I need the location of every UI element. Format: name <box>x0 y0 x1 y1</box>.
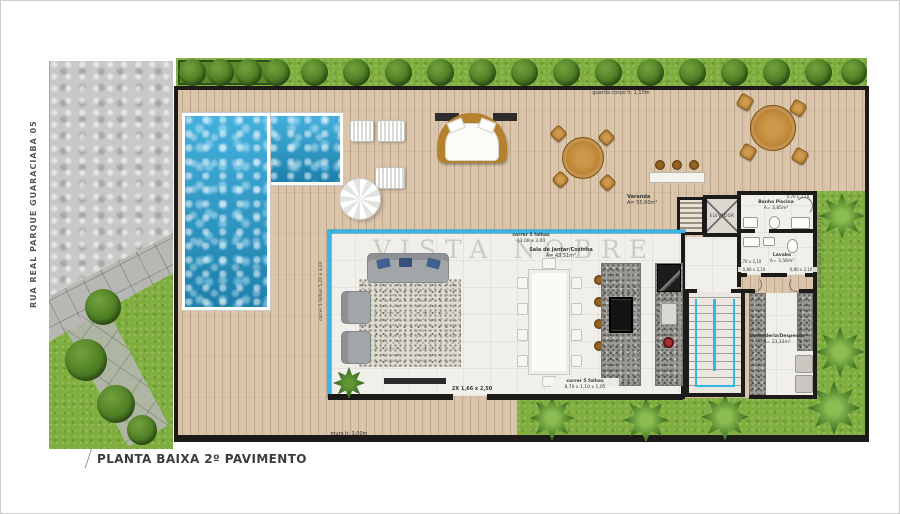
title-leader-line <box>85 447 93 468</box>
plot-wall-right <box>865 86 869 439</box>
bar-counter <box>649 172 705 183</box>
round-table <box>562 137 604 179</box>
parasol <box>339 178 381 220</box>
wall <box>761 273 787 277</box>
guard-rail-label: guarda corpo h: 1,10m <box>579 90 663 96</box>
opening-label-glass-left: correr 5 folhas 5,20 x 3,00 <box>319 259 324 323</box>
sun-lounger <box>350 120 374 142</box>
bathroom-vanity <box>791 217 810 229</box>
dining-chair <box>571 355 582 367</box>
hedge-bush <box>263 59 290 86</box>
hedge-bush <box>235 59 262 86</box>
opening-label-glass-top: correr 5 folhas13,00 x 3,00 <box>499 233 563 244</box>
tree <box>97 385 135 423</box>
room-label-sala: Sala de Jantar/CozinhaA= 43,51m² <box>503 247 619 260</box>
stair-rail-center <box>713 299 716 371</box>
cooktop <box>609 297 633 333</box>
hedge-bush <box>385 59 412 86</box>
plot-wall-bottom <box>174 435 869 442</box>
tree <box>127 415 157 445</box>
opening-label-lavanderia-window: correr 2 folhas 1,60 x 1,10 <box>799 301 804 351</box>
street-name-label: RUA REAL PARQUE GUARACIABA 05 <box>29 119 39 309</box>
dining-chair <box>517 303 528 315</box>
dryer-machine <box>795 375 813 393</box>
glass-wall-left <box>328 230 331 398</box>
hedge-bush <box>469 59 496 86</box>
hedge-bush <box>301 59 328 86</box>
hedge-bush <box>595 59 622 86</box>
step-mat <box>493 113 517 121</box>
sun-lounger <box>377 120 405 142</box>
dining-chair <box>517 277 528 289</box>
door-swing-arc <box>795 197 813 215</box>
floor-plan-canvas: RUA REAL PARQUE GUARACIABA 05 guarda cor… <box>0 0 900 514</box>
bar-stool <box>689 160 699 170</box>
round-table <box>750 105 796 151</box>
dining-chair <box>542 258 556 269</box>
washing-machine <box>795 355 813 373</box>
page-title: PLANTA BAIXA 2º PAVIMENTO <box>97 452 307 466</box>
hedge-bush <box>511 59 538 86</box>
room-label-elevador: ELEVADOR <box>705 213 739 218</box>
bar-stool <box>655 160 665 170</box>
room-label-varanda: VarandaA= 55,60m² <box>627 194 669 207</box>
opening-label-glass-bottom: correr 5 folhas8,70 x 1,10 x 1,05 <box>551 378 619 391</box>
opening-label-hall-door-1: 0,80 x 2,10 <box>738 267 770 272</box>
opening-label-lavabo-door: 0,70 x 2,10 <box>734 259 766 264</box>
hedge-bush <box>207 59 234 86</box>
wall <box>749 395 817 399</box>
hedge-bush <box>343 59 370 86</box>
hedge-bush <box>427 59 454 86</box>
hedge-bush <box>679 59 706 86</box>
area-rug <box>359 279 461 367</box>
tree <box>85 289 121 325</box>
tv-console <box>384 378 446 384</box>
opening-label-living-door: 2X 1,66 x 2,50 <box>445 386 499 392</box>
dining-table <box>528 269 570 375</box>
hedge-bush <box>805 59 832 86</box>
armchair <box>341 291 371 324</box>
wall-living-bottom-left <box>328 394 453 400</box>
plot-wall-left <box>174 86 178 439</box>
stove-knob <box>663 337 674 348</box>
plot-wall-top <box>174 86 869 90</box>
bar-stool <box>672 160 682 170</box>
wall <box>805 273 817 277</box>
corridor-floor <box>685 237 737 293</box>
hedge-bush <box>721 59 748 86</box>
palm-tree <box>815 327 865 377</box>
kitchen-sink <box>661 303 677 325</box>
opening-label-east-window: janela basculante 1,20 x 0,60 x 1,60 <box>818 213 823 289</box>
shower-base <box>743 217 758 228</box>
pool-main <box>182 113 270 310</box>
lavabo-counter <box>763 237 775 246</box>
dining-chair <box>571 277 582 289</box>
opening-label-hall-door-2: 0,80 x 2,10 <box>785 267 817 272</box>
dining-chair <box>571 303 582 315</box>
wall-height-label: muro h: 3,00m <box>317 431 381 437</box>
palm-tree <box>701 393 749 441</box>
lavabo-toilet <box>787 239 798 253</box>
tree <box>65 339 107 381</box>
lavabo-sink <box>743 237 760 247</box>
hedge-bush <box>179 59 206 86</box>
hedge-bush <box>763 59 790 86</box>
toilet <box>769 216 780 229</box>
dining-chair <box>517 355 528 367</box>
dining-chair <box>571 329 582 341</box>
armchair <box>341 331 371 364</box>
hedge-bush <box>841 59 867 85</box>
sofa-pillow <box>399 258 412 267</box>
hedge-bush <box>553 59 580 86</box>
sun-lounger <box>375 167 405 189</box>
dining-chair <box>517 329 528 341</box>
wall-living-bottom-right <box>487 394 683 400</box>
hedge-bush <box>637 59 664 86</box>
wall <box>737 273 747 277</box>
refrigerator <box>657 264 681 292</box>
